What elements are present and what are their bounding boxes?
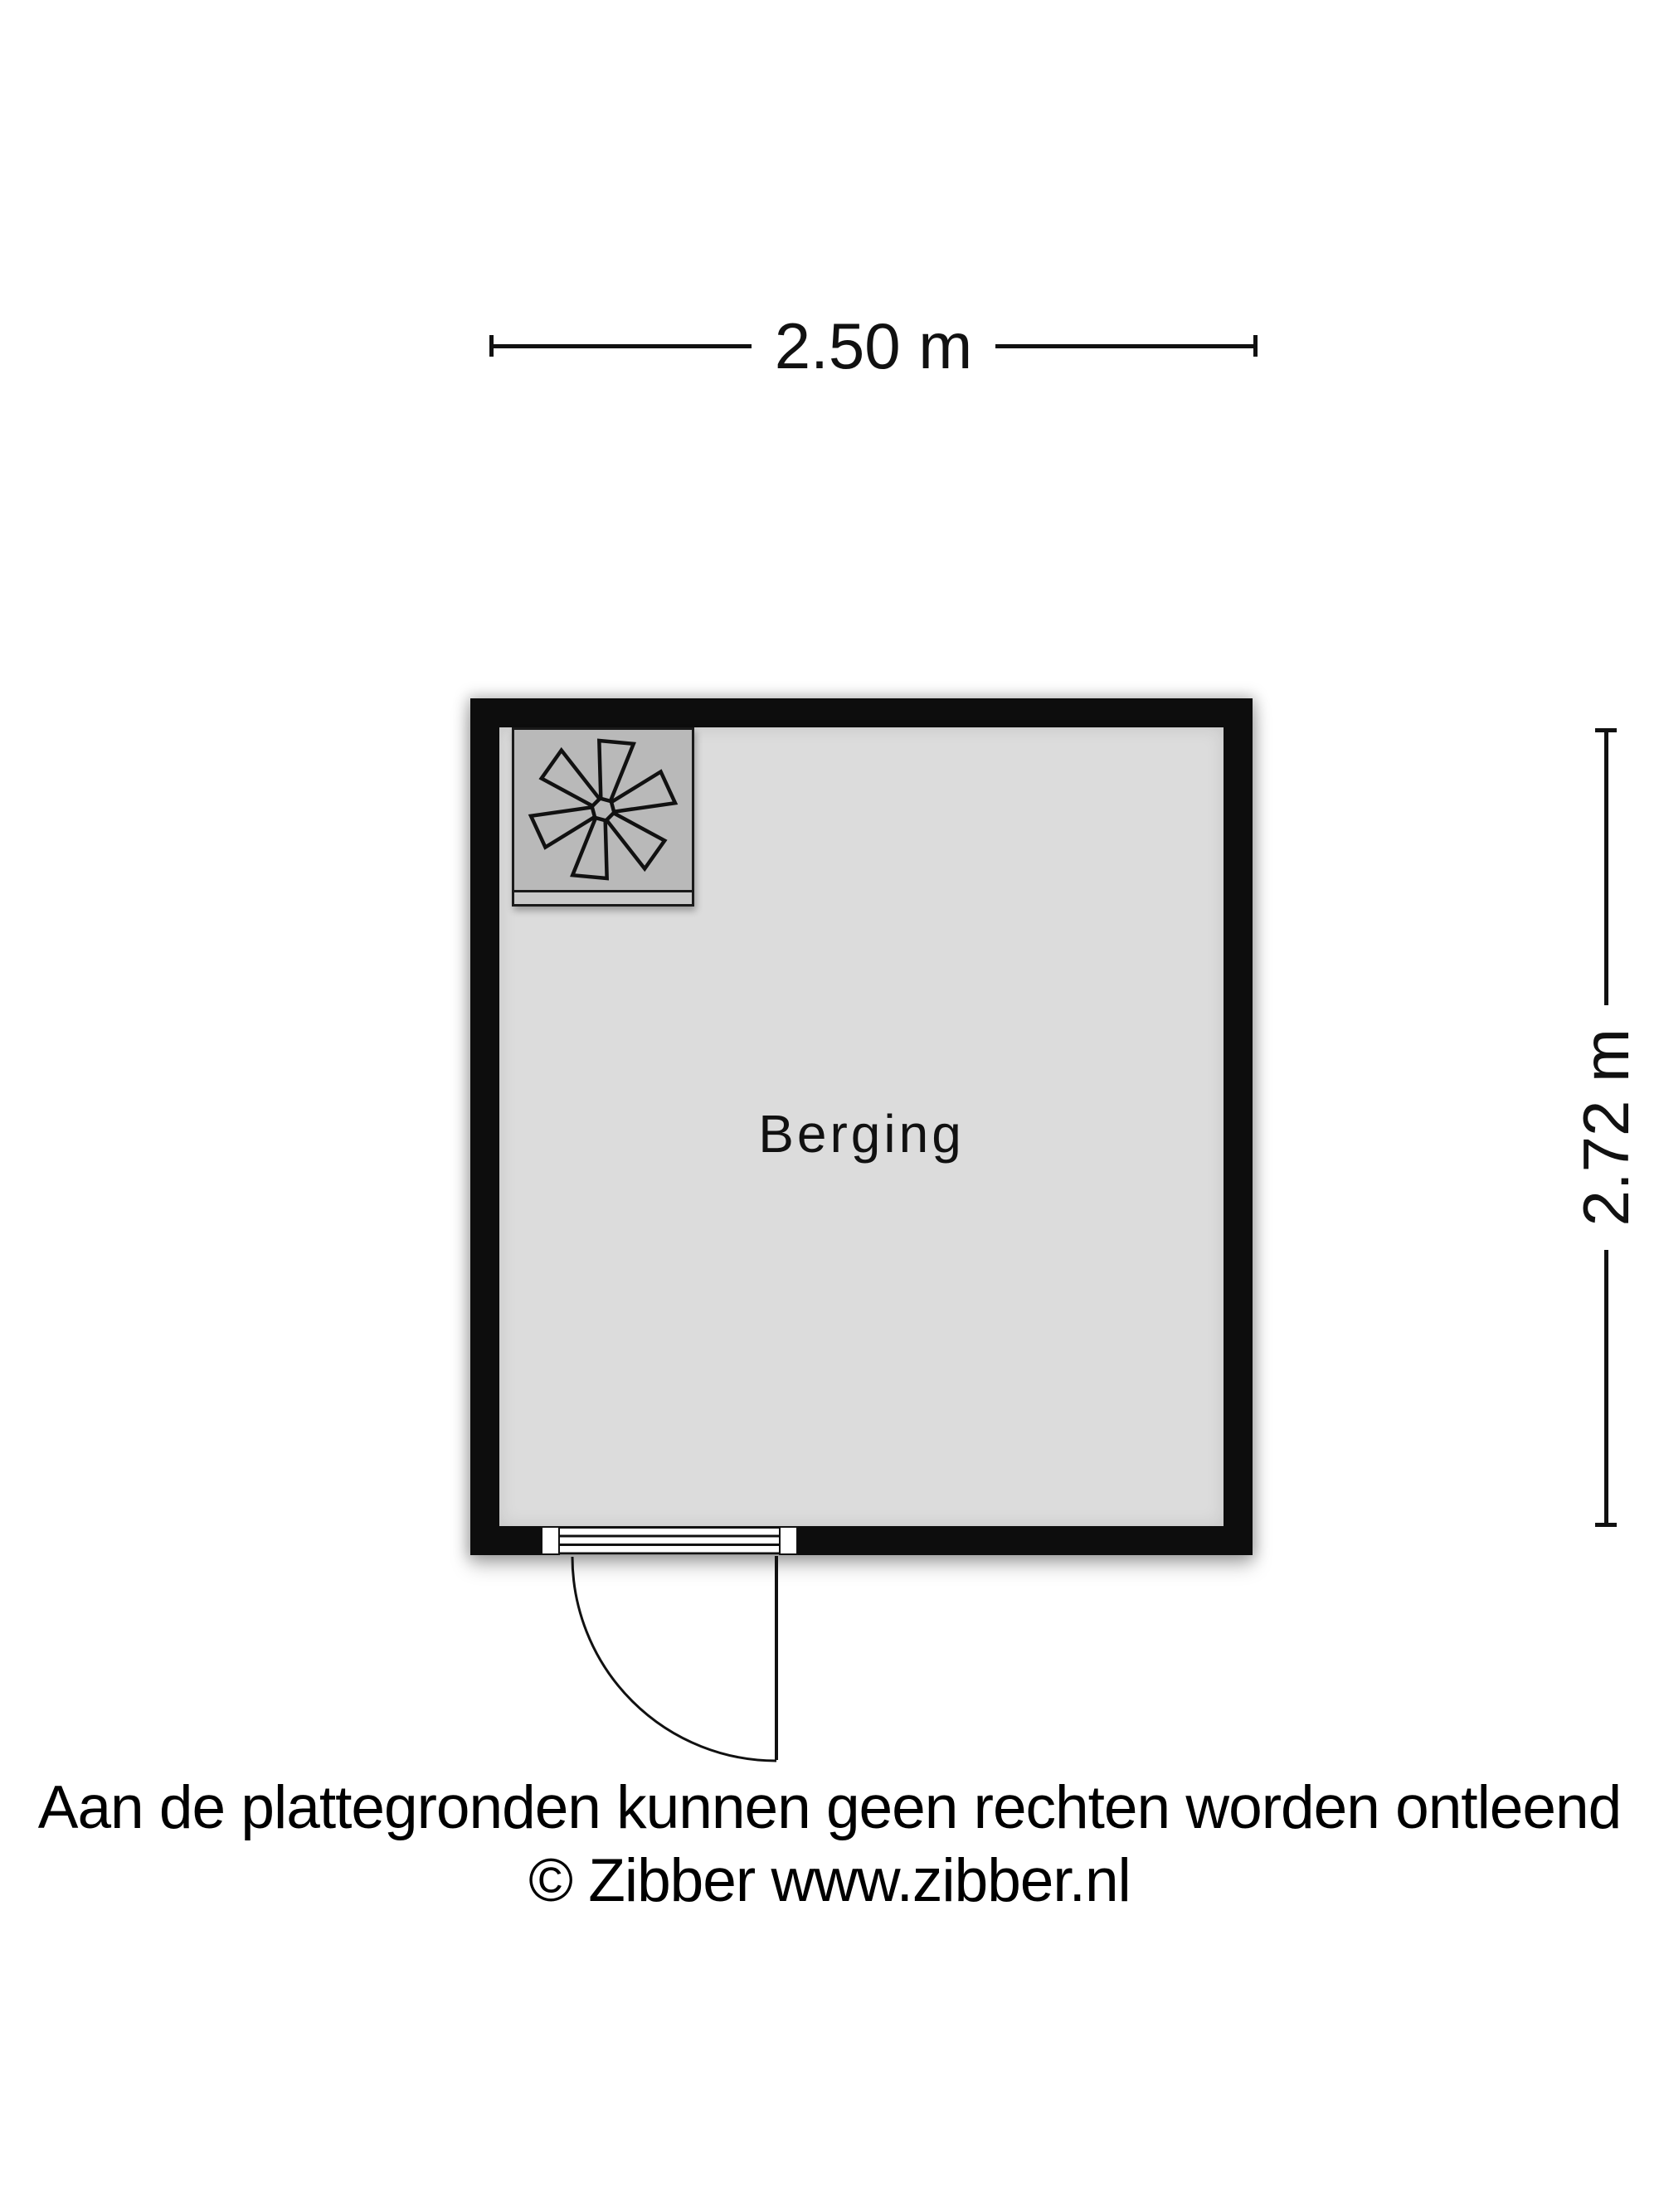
footer: Aan de plattegronden kunnen geen rechten… xyxy=(0,1772,1659,1917)
room-berging: Berging xyxy=(470,698,1253,1555)
door-swing-arc xyxy=(572,1557,776,1761)
fan-unit xyxy=(512,727,694,907)
fan-unit-base xyxy=(514,890,692,904)
door-opening xyxy=(541,1526,798,1555)
dimension-width-label: 2.50 m xyxy=(752,314,995,378)
door-swing xyxy=(531,1553,813,1780)
footer-disclaimer: Aan de plattegronden kunnen geen rechten… xyxy=(0,1772,1659,1845)
fan-icon xyxy=(514,730,692,892)
dimension-tick-right xyxy=(1253,335,1258,357)
door-jamb-right xyxy=(779,1526,798,1555)
dimension-line xyxy=(494,344,752,348)
dimension-tick-bottom xyxy=(1595,1523,1617,1527)
dimension-width: 2.50 m xyxy=(489,309,1258,383)
dimension-line xyxy=(1604,1250,1608,1523)
room-label: Berging xyxy=(499,1103,1224,1164)
dimension-height-label: 2.72 m xyxy=(1574,1005,1638,1249)
floorplan-page: 2.50 m 2.72 m xyxy=(0,0,1659,2212)
door-jamb-left xyxy=(541,1526,560,1555)
door-threshold xyxy=(560,1526,780,1555)
dimension-line xyxy=(1604,732,1608,1005)
footer-credit: © Zibber www.zibber.nl xyxy=(0,1845,1659,1918)
dimension-line xyxy=(995,344,1253,348)
dimension-height: 2.72 m xyxy=(1569,728,1643,1527)
